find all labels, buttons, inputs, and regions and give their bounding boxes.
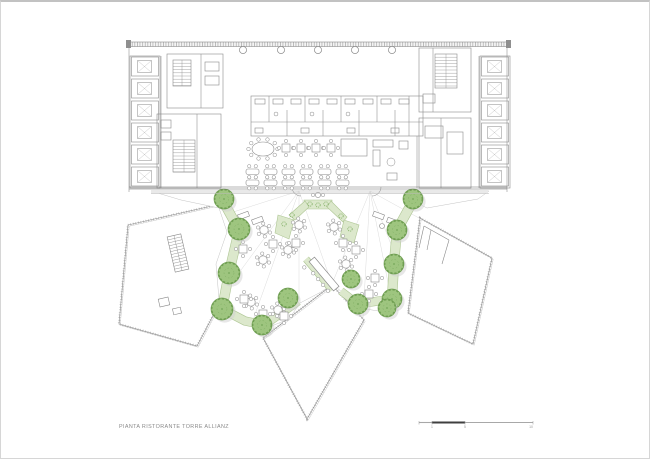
oval-table: [252, 142, 274, 156]
dining-table: [282, 180, 295, 186]
dining-table: [246, 180, 259, 186]
stair-flight: [173, 60, 191, 86]
dining-table: [300, 169, 313, 175]
drawing-caption: PIANTA RISTORANTE TORRE ALLIANZ: [119, 424, 229, 430]
stair-flight: [173, 140, 195, 172]
drawing-sheet: 1510 PIANTA RISTORANTE TORRE ALLIANZ: [0, 0, 650, 459]
elevator-bank: [132, 57, 159, 186]
elevator-bank: [482, 57, 509, 186]
column: [351, 46, 358, 53]
scale-label: 1: [431, 425, 433, 429]
stair-flight: [435, 54, 457, 88]
dining-table: [246, 169, 259, 175]
column: [388, 46, 395, 53]
scale-label: 10: [529, 425, 533, 429]
dining-table: [318, 169, 331, 175]
dining-table: [264, 180, 277, 186]
dining-table: [336, 169, 349, 175]
scale-label: 5: [464, 425, 466, 429]
dining-table: [300, 180, 313, 186]
tower-building: [126, 40, 511, 196]
column: [314, 46, 321, 53]
column: [239, 46, 246, 53]
floor-plan-svg: 1510: [1, 2, 650, 459]
square-table: [322, 139, 339, 156]
dining-table: [264, 169, 277, 175]
dining-table: [282, 169, 295, 175]
dining-table: [318, 180, 331, 186]
dining-area: [246, 138, 349, 190]
scale-bar: 1510: [419, 421, 533, 429]
curtain-wall: [129, 42, 507, 47]
dining-table: [336, 180, 349, 186]
duo-table: [311, 192, 324, 197]
column: [277, 46, 284, 53]
